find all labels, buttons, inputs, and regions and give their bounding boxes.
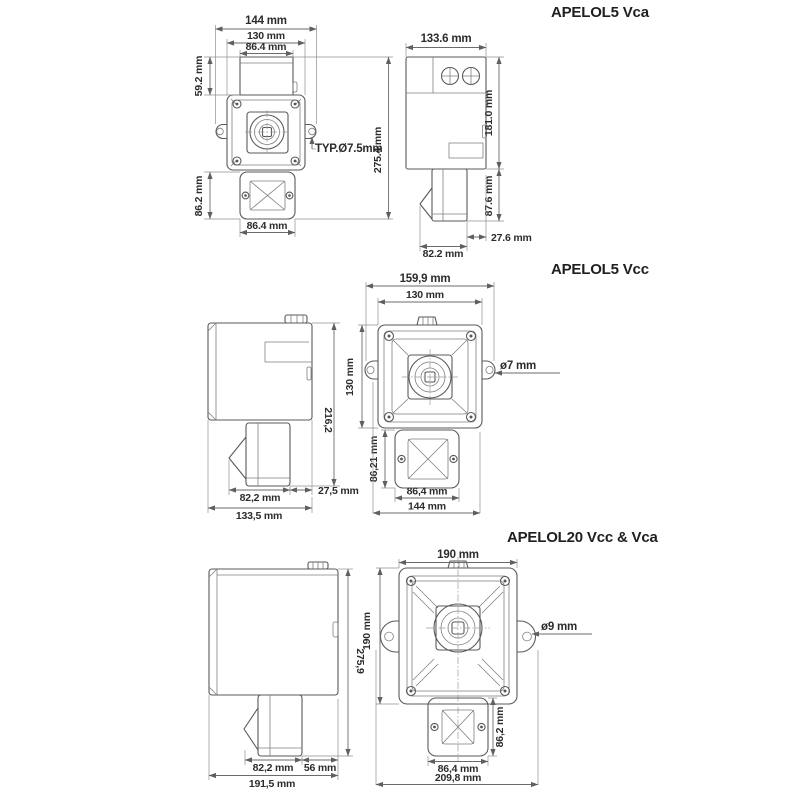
apelol5-vcc-front-view bbox=[365, 317, 495, 488]
dim-fixing-width-label: 130 mm bbox=[406, 289, 444, 301]
section-title: APELOL5 Vcc bbox=[551, 261, 649, 278]
dim-fixing-height-label: 130 mm bbox=[344, 358, 356, 396]
dim-horn-width-label: 82,2 mm bbox=[253, 762, 294, 774]
dim-body-height-label: 181.0 mm bbox=[483, 90, 495, 136]
dim-depth-overall-label: 133.6 mm bbox=[421, 33, 472, 45]
apelol20-side-dims: 275,9 82,2 mm 56 mm 191,5 mm bbox=[209, 569, 366, 790]
dim-horn-width-label: 82,2 mm bbox=[240, 492, 281, 504]
dim-horn-width-label: 86.4 mm bbox=[247, 220, 288, 232]
dim-overall-width-label: 144 mm bbox=[245, 15, 287, 27]
dim-overall-height-label: 216,2 bbox=[322, 407, 334, 433]
apelol5-vca-side-dims: 133.6 mm 181.0 mm 87.6 mm 27.6 mm 82.2 m… bbox=[406, 33, 532, 260]
dim-offset-label: 27,5 mm bbox=[318, 485, 359, 497]
dim-horn-height-label: 86,2 mm bbox=[494, 707, 506, 748]
corner-screw-icon bbox=[233, 100, 299, 165]
dim-top-width-label: 86.4 mm bbox=[246, 41, 287, 53]
apelol20-side-view bbox=[209, 562, 338, 756]
apelol5-vca-front-view bbox=[216, 57, 316, 219]
cable-gland-icon bbox=[442, 68, 480, 85]
section-title: APELOL20 Vcc & Vca bbox=[507, 529, 658, 546]
dim-base-width-label: 209,8 mm bbox=[435, 772, 481, 784]
dim-top-height-label: 59.2 mm bbox=[193, 56, 205, 97]
dim-overall-width-label: 159,9 mm bbox=[400, 273, 451, 285]
dim-overall-width-label: 191,5 mm bbox=[249, 778, 295, 790]
dim-overall-height-label: 275,9 bbox=[354, 648, 366, 674]
apelol5-vca-side-view bbox=[406, 57, 487, 221]
hole-note-label: ø7 mm bbox=[500, 360, 536, 372]
hole-note-label: TYP.Ø7.5mm bbox=[315, 143, 382, 155]
datasheet-page: APELOL5 Vca bbox=[0, 0, 800, 800]
section-apelol5-vca: APELOL5 Vca bbox=[193, 4, 650, 260]
dim-horn-depth-label: 87.6 mm bbox=[483, 176, 495, 217]
section-title: APELOL5 Vca bbox=[551, 4, 650, 21]
dim-overall-width-label: 190 mm bbox=[437, 549, 479, 561]
dim-horn-width-label: 86,4 mm bbox=[407, 486, 448, 498]
dim-horn-height-label: 86,21 mm bbox=[368, 436, 380, 482]
dim-horn-height-label: 86.2 mm bbox=[193, 176, 205, 217]
apelol20-front-dims: 190 mm 190 mm ø9 mm 86,2 mm 86,4 mm 209,… bbox=[361, 549, 592, 785]
dim-base-width-label: 144 mm bbox=[408, 501, 446, 513]
dim-overall-width-label: 133,5 mm bbox=[236, 510, 282, 522]
dim-offset-label: 27.6 mm bbox=[491, 232, 532, 244]
apelol5-vcc-side-view bbox=[208, 315, 312, 486]
apelol5-vca-front-dims: 144 mm 130 mm 86.4 mm 59.2 mm 275.4 mm T… bbox=[193, 15, 393, 237]
section-apelol20: APELOL20 Vcc & Vca 275,9 82,2 mm 56 bbox=[209, 529, 658, 790]
dim-horn-width-label: 82.2 mm bbox=[423, 248, 464, 260]
dimension-drawings: APELOL5 Vca bbox=[0, 0, 800, 800]
dim-offset-label: 56 mm bbox=[304, 762, 336, 774]
dim-overall-height-label: 190 mm bbox=[361, 612, 373, 650]
apelol20-front-view bbox=[380, 557, 535, 762]
section-apelol5-vcc: APELOL5 Vcc 216,2 82,2 mm 27,5 mm bbox=[208, 261, 649, 522]
hole-note-label: ø9 mm bbox=[541, 621, 577, 633]
